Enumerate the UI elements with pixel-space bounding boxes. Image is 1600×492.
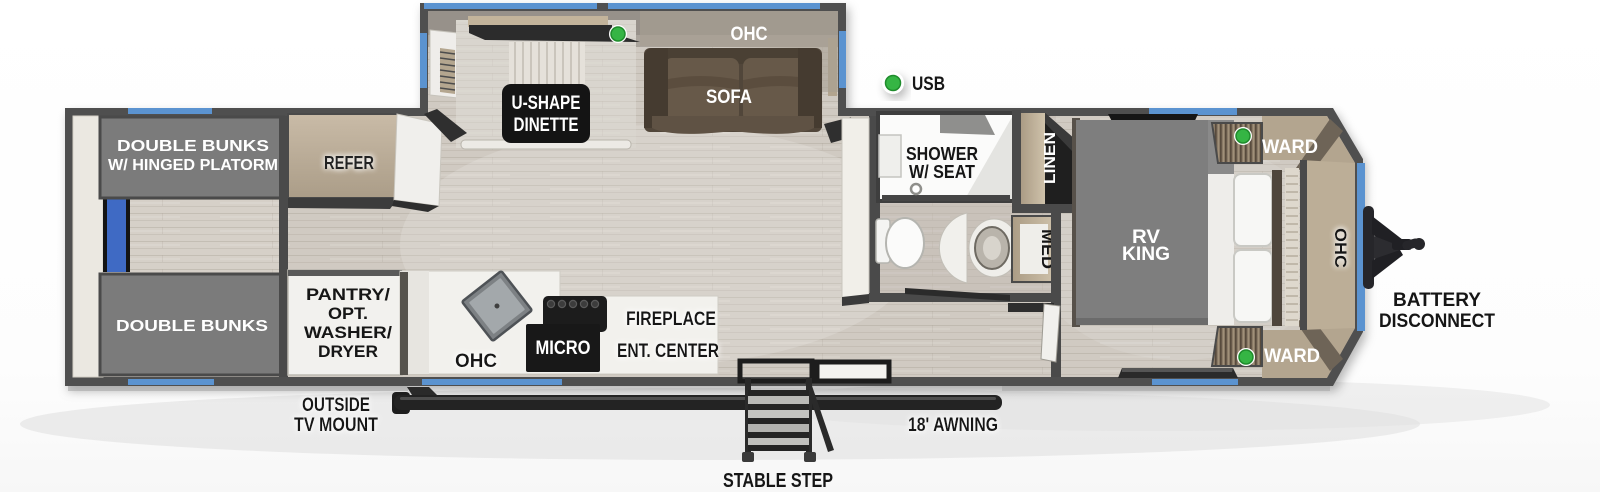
svg-text:DOUBLE BUNKS: DOUBLE BUNKS <box>116 318 268 335</box>
svg-text:18' AWNING: 18' AWNING <box>908 415 998 436</box>
svg-text:TV MOUNT: TV MOUNT <box>294 415 378 436</box>
svg-text:OHC: OHC <box>731 24 768 45</box>
svg-text:PANTRY/: PANTRY/ <box>306 285 390 304</box>
svg-text:USB: USB <box>912 74 945 95</box>
svg-text:WASHER/: WASHER/ <box>304 323 392 342</box>
svg-text:OPT.: OPT. <box>328 304 368 323</box>
svg-text:STABLE STEP: STABLE STEP <box>723 470 833 492</box>
svg-text:BATTERY: BATTERY <box>1393 290 1481 311</box>
svg-text:DINETTE: DINETTE <box>514 115 579 136</box>
svg-text:WARD: WARD <box>1262 137 1318 158</box>
svg-text:MICRO: MICRO <box>536 338 591 359</box>
svg-text:U-SHAPE: U-SHAPE <box>512 93 581 114</box>
svg-text:OHC: OHC <box>455 351 497 372</box>
svg-text:FIREPLACE: FIREPLACE <box>626 309 716 330</box>
svg-text:OUTSIDE: OUTSIDE <box>302 395 370 416</box>
svg-text:OHC: OHC <box>1331 228 1350 268</box>
svg-text:DOUBLE BUNKS: DOUBLE BUNKS <box>117 138 269 155</box>
svg-text:LINEN: LINEN <box>1042 132 1059 184</box>
svg-text:REFER: REFER <box>324 153 374 173</box>
svg-text:KING: KING <box>1122 244 1170 265</box>
svg-text:SOFA: SOFA <box>706 87 752 108</box>
svg-text:W/ HINGED PLATORM: W/ HINGED PLATORM <box>108 157 278 174</box>
svg-text:W/ SEAT: W/ SEAT <box>909 162 975 182</box>
svg-text:ENT. CENTER: ENT. CENTER <box>617 341 719 362</box>
svg-text:DRYER: DRYER <box>318 342 378 361</box>
svg-text:SHOWER: SHOWER <box>906 144 978 164</box>
svg-text:WARD: WARD <box>1264 346 1320 367</box>
svg-text:DISCONNECT: DISCONNECT <box>1379 311 1495 332</box>
